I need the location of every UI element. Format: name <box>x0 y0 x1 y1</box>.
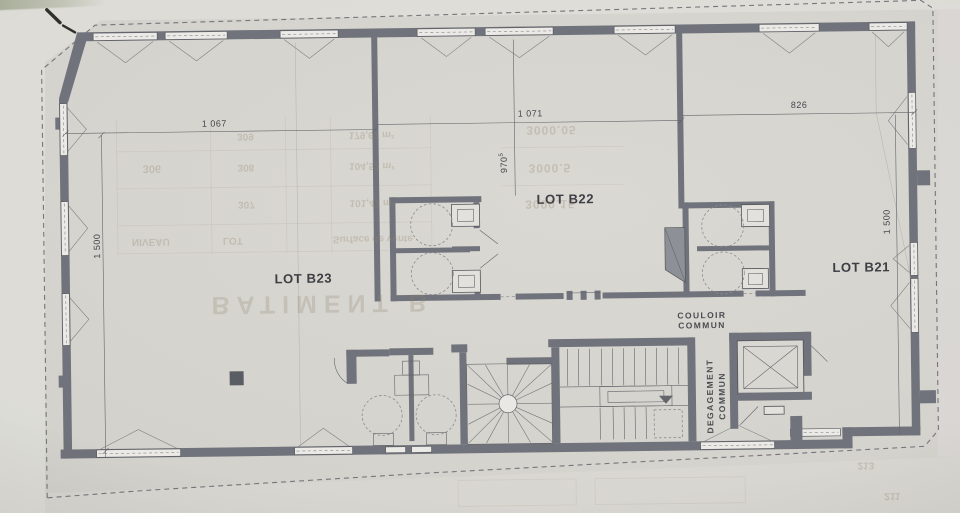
pen-mark <box>47 9 75 32</box>
floor-plan-drawing <box>0 0 960 513</box>
level-marker-triangle <box>659 396 673 404</box>
construction-lines <box>295 34 914 444</box>
wc-block-b21 <box>664 201 805 298</box>
boundary-dashed-line <box>41 0 939 498</box>
straight-stair-treads <box>559 347 688 440</box>
floor-plan-photo: BATIMENT B 309 179,67 m² 306 308 104,52 … <box>0 0 960 513</box>
partition-walls <box>371 33 685 301</box>
structural-column <box>230 371 244 385</box>
stair-core <box>451 337 696 444</box>
corridor-north-wall <box>391 289 684 302</box>
wc-block-b22 <box>389 196 498 301</box>
wc-zone-b23 <box>334 347 456 446</box>
